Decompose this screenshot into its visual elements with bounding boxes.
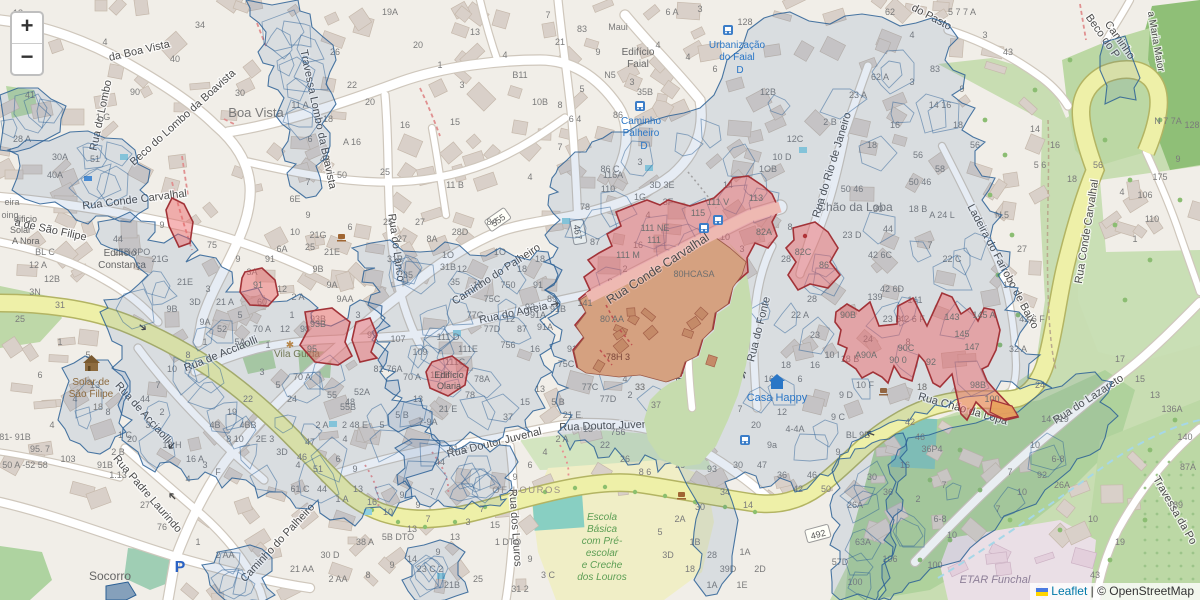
svg-text:6 4: 6 4 <box>569 114 582 124</box>
svg-text:Solar: Solar <box>10 225 31 235</box>
svg-text:9: 9 <box>389 560 394 570</box>
svg-text:50 A -52 58: 50 A -52 58 <box>2 460 48 470</box>
svg-text:6: 6 <box>37 370 42 380</box>
svg-text:18: 18 <box>93 402 103 412</box>
svg-text:1: 1 <box>57 337 62 347</box>
svg-text:8 6: 8 6 <box>639 467 652 477</box>
svg-text:82C: 82C <box>795 247 812 257</box>
svg-text:BL C: BL C <box>35 247 55 257</box>
svg-text:3: 3 <box>697 4 702 14</box>
svg-text:21: 21 <box>555 37 565 47</box>
svg-text:2A: 2A <box>674 514 685 524</box>
svg-text:136A: 136A <box>1161 404 1182 414</box>
svg-text:N 7 7A: N 7 7A <box>1154 116 1182 126</box>
svg-text:10B: 10B <box>532 97 548 107</box>
svg-text:e Creche: e Creche <box>582 560 623 571</box>
svg-text:17: 17 <box>1115 354 1125 364</box>
svg-text:111 NE: 111 NE <box>641 223 670 233</box>
svg-text:25: 25 <box>305 242 315 252</box>
svg-text:18: 18 <box>685 564 695 574</box>
svg-text:21G: 21G <box>309 230 326 240</box>
svg-text:7: 7 <box>557 142 562 152</box>
svg-text:91: 91 <box>253 280 263 290</box>
svg-text:5 6: 5 6 <box>1034 160 1047 170</box>
svg-text:30 D: 30 D <box>320 550 340 560</box>
svg-text:19A: 19A <box>382 7 398 17</box>
svg-text:Faial: Faial <box>627 59 649 70</box>
svg-text:13: 13 <box>470 27 480 37</box>
svg-text:4: 4 <box>502 50 507 60</box>
svg-text:143: 143 <box>944 312 959 322</box>
svg-text:92: 92 <box>926 357 936 367</box>
svg-text:1: 1 <box>437 60 442 70</box>
svg-text:3 C: 3 C <box>541 570 556 580</box>
svg-text:1: 1 <box>1132 234 1137 244</box>
svg-text:Socorro: Socorro <box>89 569 131 583</box>
svg-text:27: 27 <box>1017 244 1027 254</box>
svg-text:6E: 6E <box>289 194 300 204</box>
svg-text:8: 8 <box>557 100 562 110</box>
svg-text:dos Louros: dos Louros <box>577 572 626 583</box>
svg-text:9: 9 <box>527 554 532 564</box>
svg-text:7: 7 <box>425 514 430 524</box>
svg-text:oing: oing <box>1 210 18 220</box>
svg-text:62: 62 <box>885 7 895 17</box>
svg-text:Casa Happy: Casa Happy <box>747 392 808 404</box>
svg-text:37: 37 <box>651 400 661 410</box>
svg-text:115: 115 <box>691 208 705 218</box>
svg-text:15: 15 <box>490 520 500 530</box>
svg-text:95. 7: 95. 7 <box>30 444 50 454</box>
svg-text:27: 27 <box>415 217 425 227</box>
svg-text:São Filipe: São Filipe <box>69 389 114 400</box>
svg-text:27: 27 <box>397 234 407 244</box>
svg-text:6: 6 <box>527 460 532 470</box>
svg-text:22: 22 <box>347 80 357 90</box>
svg-text:30: 30 <box>235 88 245 98</box>
svg-text:B11: B11 <box>512 70 527 80</box>
svg-text:10: 10 <box>1088 514 1098 524</box>
svg-text:140: 140 <box>1177 432 1192 442</box>
svg-text:93B: 93B <box>310 319 326 329</box>
svg-text:4: 4 <box>49 420 54 430</box>
svg-text:90C: 90C <box>898 343 915 353</box>
svg-text:35B: 35B <box>637 87 653 97</box>
svg-text:8: 8 <box>365 570 370 580</box>
svg-text:3: 3 <box>982 30 987 40</box>
svg-text:18: 18 <box>917 382 927 392</box>
svg-text:14: 14 <box>1030 124 1040 134</box>
svg-text:3D: 3D <box>662 550 674 560</box>
svg-text:128: 128 <box>737 17 752 27</box>
svg-text:13: 13 <box>450 532 460 542</box>
svg-text:1: 1 <box>195 537 200 547</box>
svg-text:Maui: Maui <box>608 22 628 32</box>
svg-text:2 B: 2 B <box>111 447 125 457</box>
svg-text:Caminho: Caminho <box>621 116 661 127</box>
svg-text:145: 145 <box>954 329 969 339</box>
svg-text:31: 31 <box>55 300 65 310</box>
svg-text:56: 56 <box>1093 160 1103 170</box>
svg-text:91: 91 <box>265 254 275 264</box>
svg-text:do Faial: do Faial <box>719 52 755 63</box>
svg-text:9: 9 <box>235 254 240 264</box>
svg-text:78H 3: 78H 3 <box>606 352 630 362</box>
svg-text:4: 4 <box>102 37 107 47</box>
svg-text:90: 90 <box>130 87 140 97</box>
svg-text:4: 4 <box>1119 187 1124 197</box>
svg-text:81- 91B: 81- 91B <box>0 432 31 442</box>
svg-text:D: D <box>736 65 743 76</box>
svg-text:50: 50 <box>821 484 831 494</box>
svg-text:21 AA: 21 AA <box>290 564 314 574</box>
svg-text:25: 25 <box>15 314 25 324</box>
svg-text:147: 147 <box>964 342 979 352</box>
svg-text:3: 3 <box>459 80 464 90</box>
svg-text:80HCASA: 80HCASA <box>673 269 714 279</box>
svg-text:Edifício: Edifício <box>622 47 655 58</box>
svg-text:13: 13 <box>1150 390 1160 400</box>
svg-text:89: 89 <box>1173 500 1183 510</box>
svg-text:38 A: 38 A <box>356 537 374 547</box>
svg-text:10: 10 <box>290 227 300 237</box>
svg-text:20: 20 <box>365 97 375 107</box>
svg-text:43: 43 <box>1090 570 1100 580</box>
svg-text:5: 5 <box>657 527 662 537</box>
svg-text:9B: 9B <box>312 264 323 274</box>
svg-text:90B: 90B <box>840 310 856 320</box>
svg-text:escolar: escolar <box>586 548 619 559</box>
svg-text:3: 3 <box>465 517 470 527</box>
svg-text:83: 83 <box>577 24 587 34</box>
svg-text:Palheiro: Palheiro <box>623 128 660 139</box>
svg-text:P: P <box>175 559 186 576</box>
svg-text:6: 6 <box>347 222 352 232</box>
svg-text:4: 4 <box>527 172 532 182</box>
svg-text:175: 175 <box>1152 172 1167 182</box>
svg-text:A90A: A90A <box>855 350 877 360</box>
svg-text:76: 76 <box>157 522 167 532</box>
svg-text:ETAR Funchal: ETAR Funchal <box>960 574 1031 586</box>
svg-text:14: 14 <box>743 500 753 510</box>
svg-text:Básica: Básica <box>587 524 617 535</box>
svg-text:87A: 87A <box>1180 462 1196 472</box>
svg-text:11 B: 11 B <box>446 180 464 190</box>
svg-text:4: 4 <box>542 447 547 457</box>
svg-text:3N: 3N <box>29 287 41 297</box>
svg-text:6 A: 6 A <box>665 7 678 17</box>
svg-text:111: 111 <box>647 235 661 245</box>
svg-text:Boa Vista: Boa Vista <box>228 105 284 120</box>
svg-text:9: 9 <box>305 210 310 220</box>
svg-text:A Nora: A Nora <box>12 236 40 246</box>
svg-text:1 G: 1 G <box>96 112 111 122</box>
svg-text:4: 4 <box>685 52 690 62</box>
svg-text:1 DTO: 1 DTO <box>495 537 521 547</box>
svg-text:91B: 91B <box>97 460 113 470</box>
svg-text:Urbanização: Urbanização <box>709 40 766 51</box>
svg-text:40: 40 <box>170 54 180 64</box>
svg-text:5B DTO: 5B DTO <box>382 532 414 542</box>
svg-text:2D: 2D <box>754 564 766 574</box>
svg-text:12B: 12B <box>44 274 60 284</box>
svg-text:Edifício: Edifício <box>434 370 464 380</box>
svg-text:106: 106 <box>1137 190 1152 200</box>
svg-text:5 7 7 A: 5 7 7 A <box>948 7 976 17</box>
svg-text:9: 9 <box>512 472 517 482</box>
svg-text:98B: 98B <box>970 380 986 390</box>
svg-text:12: 12 <box>277 284 287 294</box>
svg-text:3: 3 <box>629 77 634 87</box>
svg-text:7: 7 <box>545 10 550 20</box>
svg-text:20: 20 <box>413 40 423 50</box>
svg-text:75: 75 <box>207 240 217 250</box>
svg-text:25: 25 <box>380 167 390 177</box>
svg-text:25: 25 <box>383 217 393 227</box>
svg-text:Olaria: Olaria <box>437 381 461 391</box>
svg-text:16: 16 <box>1050 140 1060 150</box>
svg-text:6: 6 <box>712 64 717 74</box>
svg-text:110: 110 <box>1145 214 1159 224</box>
svg-text:43: 43 <box>1003 47 1013 57</box>
svg-text:82A: 82A <box>756 227 772 237</box>
svg-text:5: 5 <box>579 84 584 94</box>
svg-text:1A: 1A <box>739 547 750 557</box>
svg-text:34: 34 <box>195 20 205 30</box>
svg-text:15: 15 <box>450 117 460 127</box>
svg-text:50: 50 <box>337 170 347 180</box>
svg-text:28D: 28D <box>452 227 469 237</box>
svg-text:111 M: 111 M <box>616 250 640 260</box>
svg-text:8A: 8A <box>486 217 497 227</box>
svg-text:9: 9 <box>159 220 164 230</box>
svg-text:90 0: 90 0 <box>889 355 907 365</box>
svg-text:128: 128 <box>1184 120 1199 130</box>
svg-text:21E: 21E <box>324 247 340 257</box>
svg-text:9: 9 <box>595 47 600 57</box>
svg-text:1E: 1E <box>736 580 747 590</box>
svg-text:113: 113 <box>749 193 763 203</box>
svg-text:N5: N5 <box>604 70 616 80</box>
svg-text:9: 9 <box>1175 154 1180 164</box>
svg-text:103: 103 <box>60 454 75 464</box>
svg-text:16: 16 <box>400 120 410 130</box>
svg-text:9A: 9A <box>326 280 337 290</box>
svg-text:D: D <box>640 141 647 152</box>
svg-text:86: 86 <box>819 260 829 270</box>
svg-text:31 2: 31 2 <box>511 584 529 594</box>
svg-text:eira: eira <box>4 197 19 207</box>
svg-text:18: 18 <box>1067 174 1077 184</box>
svg-text:19: 19 <box>1115 537 1125 547</box>
svg-text:9AA: 9AA <box>336 294 353 304</box>
svg-text:25: 25 <box>473 574 483 584</box>
svg-text:4: 4 <box>655 40 660 50</box>
svg-text:1.13: 1.13 <box>109 470 127 480</box>
svg-text:111 V: 111 V <box>707 197 729 207</box>
svg-text:2 AA: 2 AA <box>328 574 347 584</box>
svg-text:33: 33 <box>635 382 645 392</box>
svg-text:com Pré-: com Pré- <box>582 536 623 547</box>
svg-text:15: 15 <box>1135 374 1145 384</box>
svg-text:141: 141 <box>577 298 592 308</box>
svg-text:12 A: 12 A <box>29 260 47 270</box>
svg-text:6A: 6A <box>276 244 287 254</box>
svg-text:A 16: A 16 <box>343 137 361 147</box>
svg-text:27: 27 <box>140 500 150 510</box>
svg-text:Escola: Escola <box>587 512 617 523</box>
svg-text:8A: 8A <box>426 234 437 244</box>
svg-text:95: 95 <box>307 344 317 354</box>
svg-text:Solar de: Solar de <box>72 377 110 388</box>
svg-text:145 A: 145 A <box>972 310 995 320</box>
